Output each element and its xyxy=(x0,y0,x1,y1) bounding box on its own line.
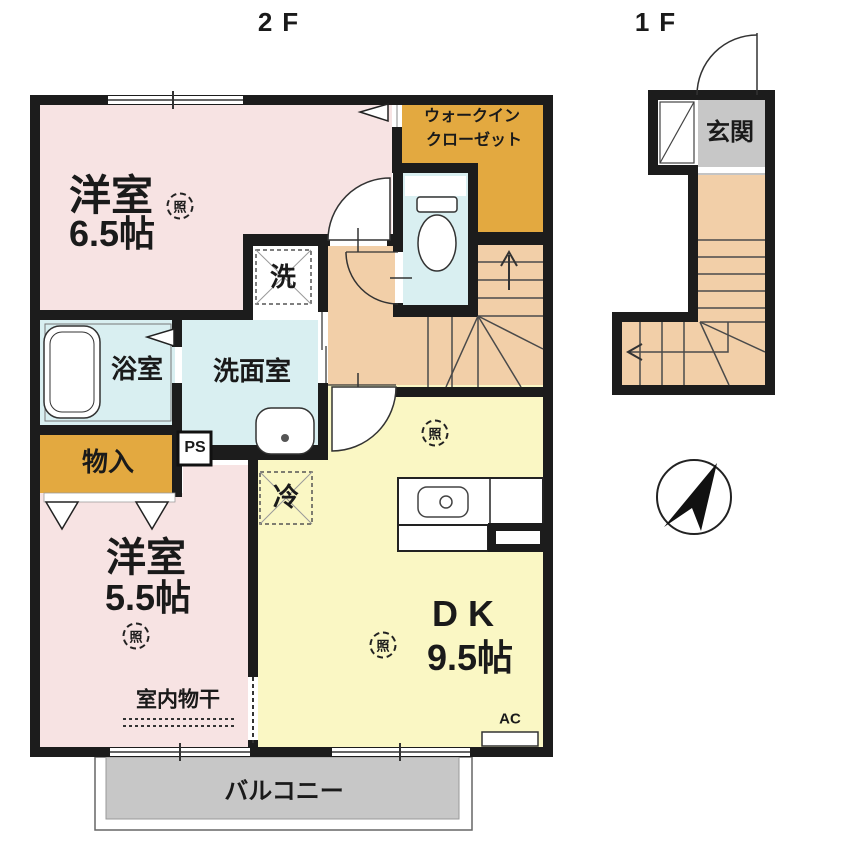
ac-unit-box xyxy=(482,732,538,746)
dk-size-label: 9.5帖 xyxy=(427,640,513,676)
bathtub-icon xyxy=(44,326,100,418)
stairs-2f-lower-run xyxy=(395,317,478,387)
hallway-area xyxy=(328,246,395,385)
bedroom65-name-label: 洋室 xyxy=(69,175,153,217)
shoe-cabinet xyxy=(660,102,694,163)
bathroom-label: 浴室 xyxy=(111,356,163,382)
balcony-label: バルコニー xyxy=(224,780,344,804)
ceiling-light-symbol-bedroom65: 照 xyxy=(167,193,194,220)
refrigerator-label: 冷 xyxy=(273,484,299,510)
indoor-drying-label: 室内物干 xyxy=(136,690,220,711)
storage-label: 物入 xyxy=(82,449,134,475)
washroom-label: 洗面室 xyxy=(213,358,291,384)
toilet-shelf xyxy=(405,176,466,196)
floor-label-1f: 1F xyxy=(635,9,685,35)
kitchen-counter xyxy=(398,478,553,552)
bedroom65-size-label: 6.5帖 xyxy=(69,216,155,252)
dk-name-label: DK xyxy=(432,596,504,632)
toilet-icon xyxy=(417,197,457,271)
bedroom55-name-label: 洋室 xyxy=(106,538,186,578)
ceiling-light-symbol-bedroom55: 照 xyxy=(123,623,150,650)
entrance-label: 玄関 xyxy=(706,121,754,145)
floor-1f-plan xyxy=(612,33,775,395)
bedroom55-size-label: 5.5帖 xyxy=(105,580,191,616)
door-arc-entrance xyxy=(697,35,757,95)
ceiling-light-symbol-dk-lower: 照 xyxy=(370,632,397,659)
north-arrow-icon xyxy=(657,460,731,534)
walk-in-closet-label-line2: クローゼット xyxy=(426,133,522,149)
ceiling-light-symbol-dk-upper: 照 xyxy=(422,420,449,447)
pipe-space-label: PS xyxy=(184,440,205,456)
ac-label: AC xyxy=(499,712,521,727)
floorplan-page: 2F 1F 洋室 6.5帖 ウォークイン クローゼット 洗 浴室 洗面室 PS … xyxy=(0,0,846,846)
washbasin-icon xyxy=(256,408,314,454)
washing-machine-label: 洗 xyxy=(270,264,296,290)
walk-in-closet-label-line1: ウォークイン xyxy=(424,109,520,125)
floor-label-2f: 2F xyxy=(258,9,308,35)
